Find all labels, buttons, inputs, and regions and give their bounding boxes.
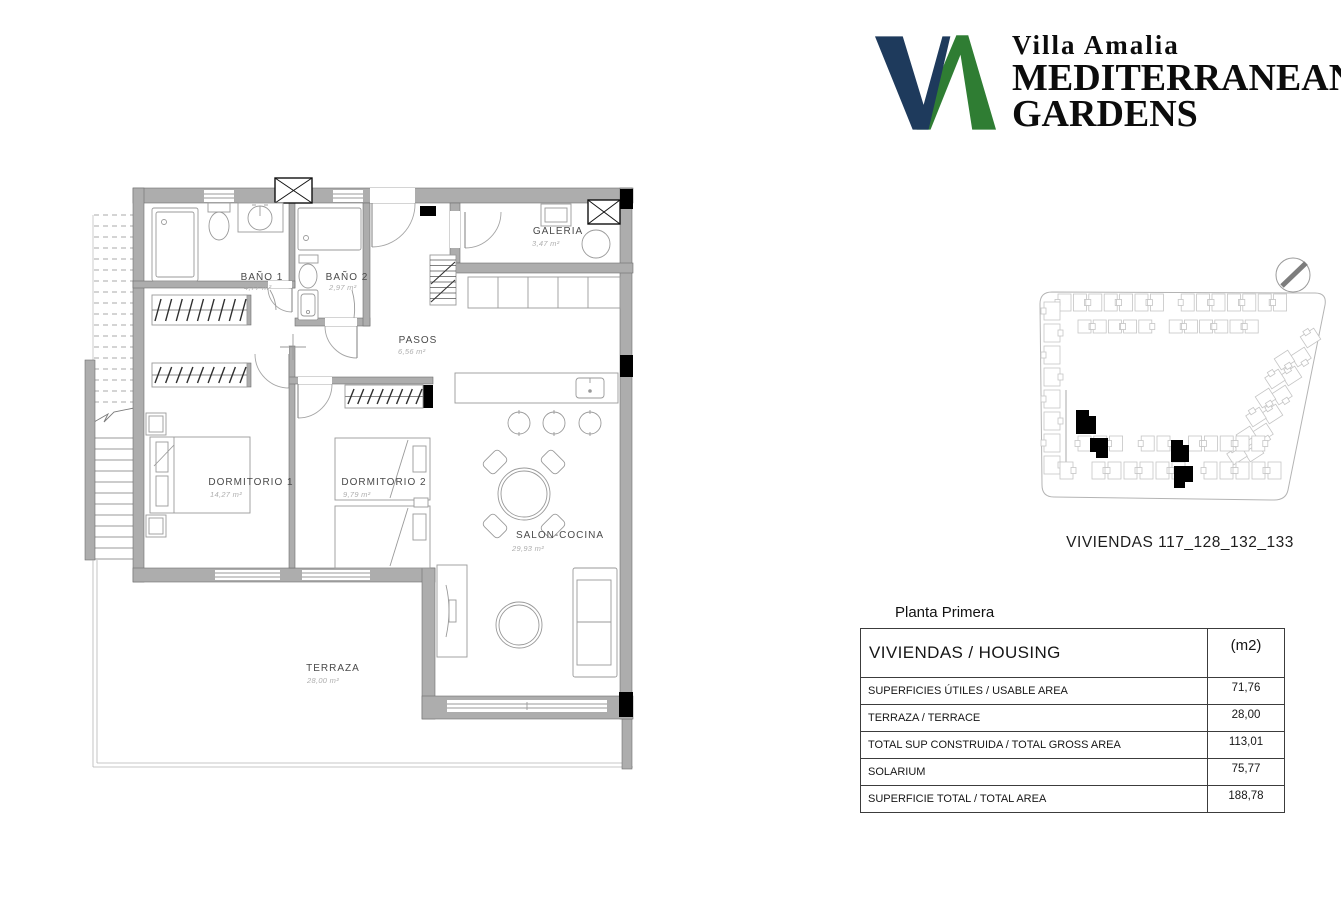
bed-double — [146, 413, 250, 537]
stair-side-wall — [85, 360, 95, 560]
row-value: 71,76 — [1208, 678, 1285, 705]
row-value: 113,01 — [1208, 732, 1285, 759]
room-area-dorm2: 9,79 m² — [343, 490, 371, 499]
room-area-bano1: 4,77 m² — [244, 283, 272, 292]
plan-sheet: { "logo": { "script_line": "Villa Amalia… — [0, 0, 1341, 900]
room-label-dorm2: DORMITORIO 2 — [341, 477, 426, 488]
room-label-bano2: BAÑO 2 — [326, 270, 369, 283]
row-label: SOLARIUM — [861, 759, 1208, 786]
wardrobe-2 — [152, 363, 247, 387]
logo-text: Villa Amalia MEDITERRANEAN GARDENS — [1012, 30, 1341, 132]
row-label: TOTAL SUP CONSTRUIDA / TOTAL GROSS AREA — [861, 732, 1208, 759]
corridor-cross-mark — [280, 334, 306, 360]
beds-single — [335, 438, 430, 568]
table-row: TERRAZA / TERRACE 28,00 — [861, 705, 1285, 732]
bath1-fixtures — [152, 203, 283, 281]
ladder-hatch — [430, 255, 456, 305]
room-label-bano1: BAÑO 1 — [241, 270, 284, 283]
table-row: SUPERFICIES ÚTILES / USABLE AREA 71,76 — [861, 678, 1285, 705]
terrace-outline — [93, 560, 633, 767]
table-row: TOTAL SUP CONSTRUIDA / TOTAL GROSS AREA … — [861, 732, 1285, 759]
row-label: SUPERFICIES ÚTILES / USABLE AREA — [861, 678, 1208, 705]
room-label-terraza: TERRAZA — [306, 663, 360, 674]
summary-table: VIVIENDAS / HOUSING (m2) SUPERFICIES ÚTI… — [860, 628, 1285, 813]
north-arrow-icon — [1276, 258, 1310, 292]
kitchen-counter — [468, 277, 620, 308]
room-area-galeria: 3,47 m² — [532, 239, 560, 248]
room-area-salon: 29,93 m² — [511, 544, 544, 553]
row-label: SUPERFICIE TOTAL / TOTAL AREA — [861, 786, 1208, 813]
room-label-galeria: GALERIA — [533, 226, 583, 237]
bath2-fixtures — [298, 208, 361, 320]
row-value: 188,78 — [1208, 786, 1285, 813]
wardrobe-dorm2 — [345, 385, 423, 408]
brand-name: Villa Amalia — [1012, 30, 1341, 60]
site-plan-caption: VIVIENDAS 117_128_132_133 — [1000, 534, 1341, 552]
coffee-table — [496, 602, 542, 648]
header-unit: (m2) — [1208, 629, 1285, 678]
floor-plan: BAÑO 1 4,77 m² BAÑO 2 2,97 m² GALERIA 3,… — [80, 170, 650, 790]
room-area-terraza: 28,00 m² — [306, 676, 339, 685]
exterior-stairs — [93, 215, 135, 560]
row-label: TERRAZA / TERRACE — [861, 705, 1208, 732]
row-value: 28,00 — [1208, 705, 1285, 732]
header-label: VIVIENDAS / HOUSING — [861, 629, 1208, 678]
sofa — [573, 568, 617, 677]
brand-title-line2: GARDENS — [1012, 96, 1341, 132]
table-header-row: VIVIENDAS / HOUSING (m2) — [861, 629, 1285, 678]
wardrobe-1 — [152, 295, 247, 325]
tv-unit — [437, 565, 467, 657]
dining-table — [482, 449, 567, 540]
site-plan — [1020, 250, 1340, 570]
kitchen-island — [455, 373, 618, 403]
room-area-bano2: 2,97 m² — [328, 283, 357, 292]
brand-title-line1: MEDITERRANEAN — [1012, 60, 1341, 96]
room-label-salon: SALON-COCINA — [516, 530, 604, 541]
table-row: SUPERFICIE TOTAL / TOTAL AREA 188,78 — [861, 786, 1285, 813]
room-label-dorm1: DORMITORIO 1 — [208, 477, 293, 488]
summary-title: Planta Primera — [895, 604, 994, 621]
room-area-pasos: 6,56 m² — [398, 347, 426, 356]
room-label-pasos: PASOS — [399, 335, 438, 346]
room-area-dorm1: 14,27 m² — [210, 490, 242, 499]
bar-stools — [508, 410, 601, 436]
logo-monogram-icon — [873, 33, 997, 133]
table-row: SOLARIUM 75,77 — [861, 759, 1285, 786]
row-value: 75,77 — [1208, 759, 1285, 786]
